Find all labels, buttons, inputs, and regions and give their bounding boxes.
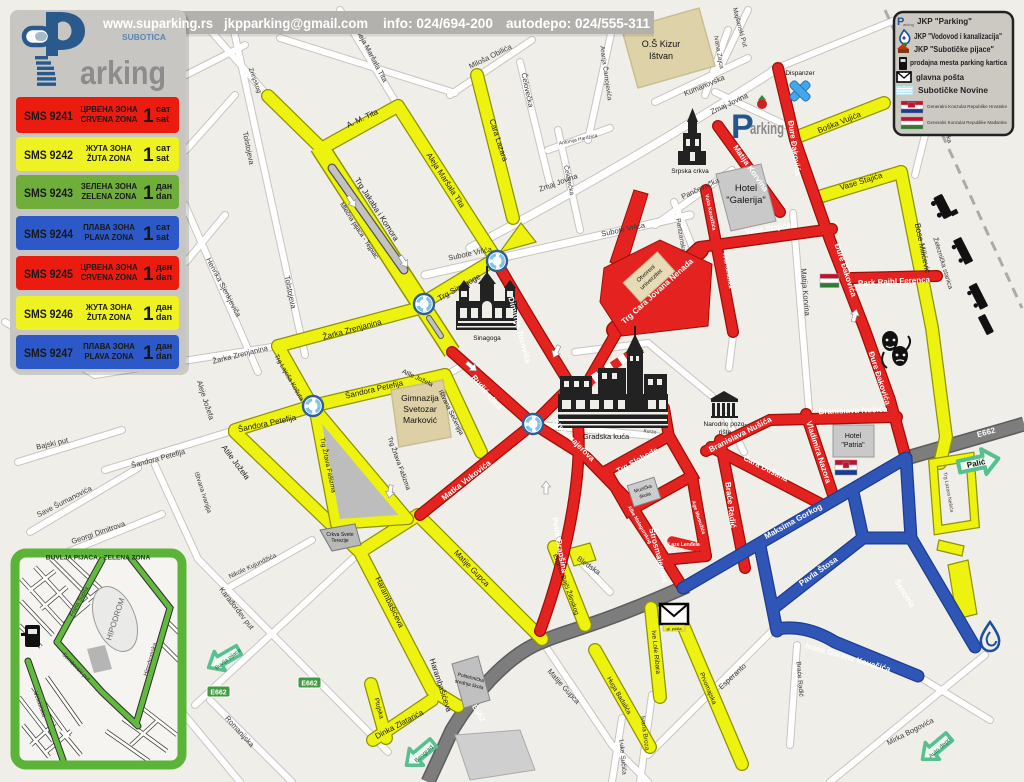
svg-text:Srpska crkva: Srpska crkva <box>671 168 709 175</box>
svg-text:SMS 9243: SMS 9243 <box>24 188 73 200</box>
svg-text:Subotičke Novine: Subotičke Novine <box>918 86 988 95</box>
svg-text:JKP "Subotičke pijace": JKP "Subotičke pijace" <box>914 45 994 54</box>
svg-text:jkpparking@gmail.com: jkpparking@gmail.com <box>223 16 368 31</box>
svg-text:Sinagoga: Sinagoga <box>473 335 501 342</box>
svg-text:arking: arking <box>80 54 166 91</box>
svg-text:Svetozar: Svetozar <box>403 404 437 414</box>
svg-text:prodajna mesta parking kartica: prodajna mesta parking kartica <box>910 58 1008 67</box>
svg-text:Generalni Konzulat Republike M: Generalni Konzulat Republike Mađarske <box>927 120 1008 125</box>
svg-text:Gimnazija: Gimnazija <box>401 393 439 403</box>
svg-text:SMS 9245: SMS 9245 <box>24 269 74 281</box>
svg-text:Ištvan: Ištvan <box>649 51 673 61</box>
svg-text:PLAVA ZONA: PLAVA ZONA <box>84 352 134 361</box>
svg-text:SMS 9244: SMS 9244 <box>24 229 74 241</box>
svg-text:1: 1 <box>143 224 154 245</box>
svg-text:сат: сат <box>156 143 171 153</box>
svg-text:arking: arking <box>750 119 784 138</box>
svg-text:Narodno pozo-: Narodno pozo- <box>704 421 747 428</box>
svg-text:dan: dan <box>156 312 172 322</box>
svg-text:CRVENA ZONA: CRVENA ZONA <box>81 115 138 124</box>
svg-text:дан: дан <box>156 341 172 351</box>
svg-text:E662: E662 <box>301 681 317 688</box>
svg-text:дан: дан <box>156 302 172 312</box>
svg-text:1: 1 <box>143 183 154 204</box>
svg-text:SUBOTICA: SUBOTICA <box>122 32 166 42</box>
svg-text:Marković: Marković <box>403 415 438 425</box>
svg-text:SMS 9246: SMS 9246 <box>24 309 73 321</box>
svg-text:O.Š Kizur: O.Š Kizur <box>642 39 681 49</box>
svg-text:ЗЕЛЕНА ЗОНА: ЗЕЛЕНА ЗОНА <box>81 182 138 191</box>
svg-text:SMS 9242: SMS 9242 <box>24 150 73 162</box>
svg-text:Hotel: Hotel <box>735 183 757 194</box>
svg-text:ЖУТА ЗОНА: ЖУТА ЗОНА <box>85 144 133 153</box>
svg-text:E662: E662 <box>210 690 226 697</box>
svg-text:SMS 9241: SMS 9241 <box>24 111 74 123</box>
svg-text:1: 1 <box>143 304 154 325</box>
svg-text:Hotel: Hotel <box>845 433 862 440</box>
svg-text:Laze Lenđela: Laze Lenđela <box>668 542 700 548</box>
svg-text:ŽUTA ZONA: ŽUTA ZONA <box>87 154 132 163</box>
svg-text:1: 1 <box>143 264 154 285</box>
svg-text:Dispanzer: Dispanzer <box>785 70 815 77</box>
svg-text:arking: arking <box>903 22 914 27</box>
svg-text:dan: dan <box>156 272 172 282</box>
svg-text:dan: dan <box>156 351 172 361</box>
svg-text:info: 024/694-200: info: 024/694-200 <box>383 16 493 31</box>
svg-text:1: 1 <box>143 106 154 127</box>
svg-text:Korzo: Korzo <box>643 428 657 435</box>
svg-text:SMS 9247: SMS 9247 <box>24 348 73 360</box>
svg-text:glavna pošta: glavna pošta <box>916 73 965 82</box>
svg-text:JKP "Vodovod i kanalizacija": JKP "Vodovod i kanalizacija" <box>914 32 1002 41</box>
svg-text:"Patria": "Patria" <box>841 442 865 449</box>
svg-text:BUVLJA PIJACA - ZELENA ZONA: BUVLJA PIJACA - ZELENA ZONA <box>46 555 151 562</box>
svg-text:Terezije: Terezije <box>331 538 348 544</box>
svg-text:1: 1 <box>143 145 154 166</box>
svg-text:сат: сат <box>156 222 171 232</box>
svg-text:Generalni Konzulat Republike H: Generalni Konzulat Republike Hrvatske <box>927 104 1008 109</box>
svg-text:ЦРВЕНА ЗОНА: ЦРВЕНА ЗОНА <box>80 263 138 272</box>
svg-text:ПЛАВА ЗОНА: ПЛАВА ЗОНА <box>83 223 135 232</box>
svg-text:autodepo: 024/555-311: autodepo: 024/555-311 <box>506 16 650 31</box>
svg-text:gl. pošta: gl. pošta <box>666 626 682 631</box>
svg-text:sat: sat <box>156 114 169 124</box>
svg-text:sat: sat <box>156 232 169 242</box>
svg-text:сат: сат <box>156 104 171 114</box>
svg-text:"Galerija": "Galerija" <box>726 195 765 206</box>
svg-text:Gradska kuća: Gradska kuća <box>583 432 630 441</box>
svg-text:CRVENA ZONA: CRVENA ZONA <box>81 273 138 282</box>
svg-text:1: 1 <box>143 343 154 364</box>
svg-text:ZELENA ZONA: ZELENA ZONA <box>81 192 137 201</box>
svg-text:dan: dan <box>156 191 172 201</box>
svg-text:ПЛАВА ЗОНА: ПЛАВА ЗОНА <box>83 342 135 351</box>
svg-text:ЖУТА ЗОНА: ЖУТА ЗОНА <box>85 303 133 312</box>
svg-text:JKP "Parking": JKP "Parking" <box>917 17 972 26</box>
svg-text:PLAVA ZONA: PLAVA ZONA <box>84 233 134 242</box>
svg-text:www.suparking.rs: www.suparking.rs <box>102 16 213 31</box>
svg-text:дан: дан <box>156 262 172 272</box>
svg-text:sat: sat <box>156 153 169 163</box>
svg-text:ЦРВЕНА ЗОНА: ЦРВЕНА ЗОНА <box>80 105 138 114</box>
svg-text:дан: дан <box>156 181 172 191</box>
svg-text:ŽUTA ZONA: ŽUTA ZONA <box>87 313 132 322</box>
